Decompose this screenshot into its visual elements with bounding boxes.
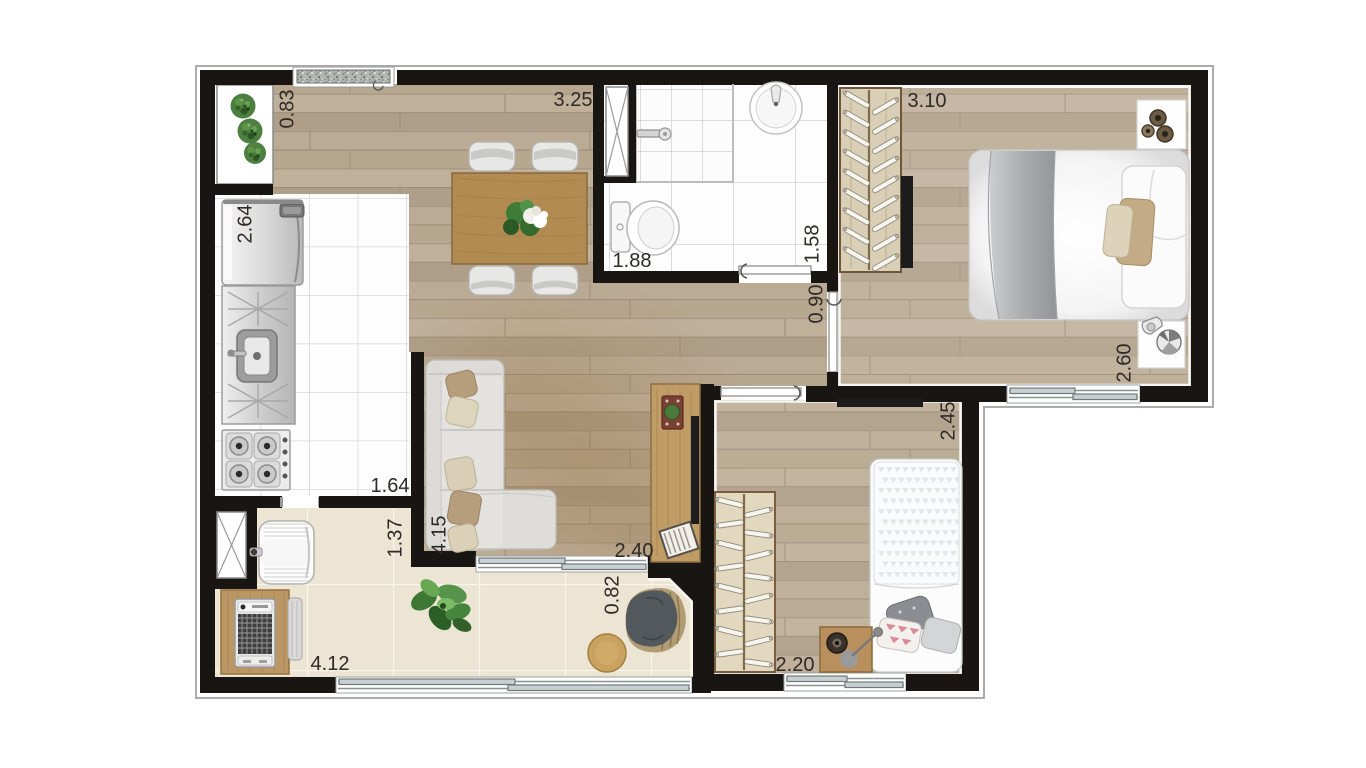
svg-text:1.64: 1.64 (371, 475, 410, 497)
svg-text:2.40: 2.40 (615, 540, 654, 562)
svg-text:4.12: 4.12 (311, 653, 350, 675)
svg-text:2.20: 2.20 (776, 654, 815, 676)
svg-text:1.58: 1.58 (801, 225, 823, 264)
svg-text:0.83: 0.83 (276, 90, 298, 129)
svg-text:3.10: 3.10 (908, 90, 947, 112)
svg-text:0.82: 0.82 (601, 576, 623, 615)
svg-text:0.90: 0.90 (805, 285, 827, 324)
svg-text:1.88: 1.88 (613, 250, 652, 272)
svg-text:2.60: 2.60 (1113, 344, 1135, 383)
svg-text:2.45: 2.45 (937, 402, 959, 441)
svg-text:4.15: 4.15 (428, 516, 450, 555)
svg-text:3.25: 3.25 (554, 89, 593, 111)
svg-text:2.64: 2.64 (234, 205, 256, 244)
svg-text:1.37: 1.37 (384, 519, 406, 558)
